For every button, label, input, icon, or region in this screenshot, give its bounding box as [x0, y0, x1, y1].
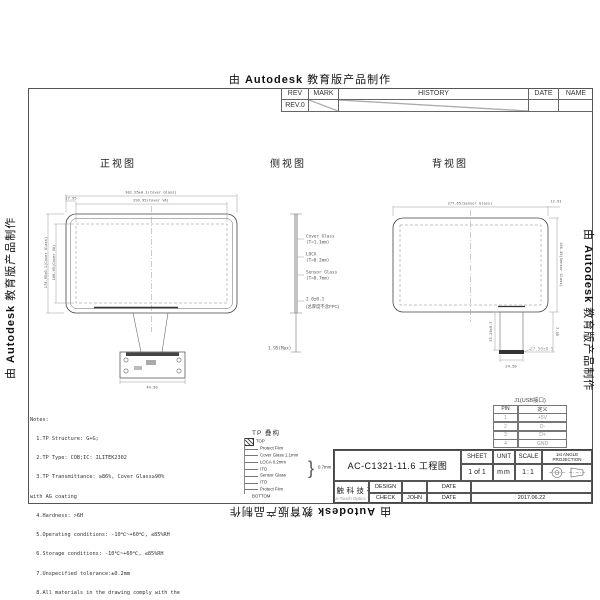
company-name-cn: 深圳市安触科技有限公司	[334, 485, 369, 496]
stackup-edge-line	[244, 438, 245, 494]
stackup-top-row: TOP	[234, 439, 336, 446]
stackup-layer-row: Cover Glass 1.1mm	[234, 453, 336, 460]
note-line: with AG coating	[30, 494, 230, 500]
check-date-label: DATE	[427, 493, 471, 505]
company-cell: 深圳市安触科技有限公司 ShenZhen An-Touch Optics Tec…	[334, 481, 369, 504]
side-max-thickness: 1.95(Max)	[268, 346, 291, 351]
company-name-en: ShenZhen An-Touch Optics Tech Co.,Ltd	[334, 496, 369, 501]
side-total-note: (总厚度不含FPC)	[306, 303, 339, 309]
dim-front-corner: 27.95	[62, 196, 81, 200]
side-layer-cover-thickness: (T=1.1mm)	[306, 240, 329, 245]
leader-line	[244, 489, 258, 490]
notes-title: Notes:	[30, 417, 230, 423]
dim-front-width-inner: 293.95(Cover VA)	[114, 198, 188, 202]
side-layer-loca-thickness: (T=0.2mm)	[306, 258, 329, 263]
dim-back-height: 166.35(Sensor Glass)	[559, 227, 563, 301]
checker-name: JOHN	[402, 493, 427, 505]
title-block-top: AC-C1321-11.6 工程图 SHEET UNIT SCALE 1st A…	[334, 450, 592, 481]
note-line: 2.TP Type: COB;IC: ILITEK2302	[30, 455, 230, 461]
design-date-value	[471, 481, 592, 493]
front-view-pcb	[120, 352, 185, 378]
pin-number: 4	[493, 439, 518, 448]
scale-label: SCALE	[515, 450, 542, 464]
dim-front-width-outer: 301.95±0.1(Cover Glass)	[114, 190, 188, 194]
title-block: AC-C1321-11.6 工程图 SHEET UNIT SCALE 1st A…	[333, 449, 593, 503]
note-line: 7.Unspecified tolerance:±0.2mm	[30, 571, 230, 577]
side-layer-cover-name: Cover Glass	[306, 234, 335, 239]
stackup-layer-row: ITO	[234, 480, 336, 487]
design-date-label: DATE	[427, 481, 471, 493]
stackup-top-label: TOP	[256, 440, 265, 444]
side-layer-sensor-name: Sensor Glass	[306, 270, 337, 275]
designer-name	[402, 481, 427, 493]
check-date-value: 2017.06.22	[471, 493, 592, 505]
dim-back-tail-offset: 7.95	[555, 319, 559, 344]
leader-line	[244, 455, 258, 456]
first-angle-projection-icon	[545, 465, 589, 480]
stackup-bottom-row: BOTTOM	[234, 493, 336, 500]
note-line: 1.TP Structure: G+G;	[30, 436, 230, 442]
note-line: 6.Storage conditions: -10℃~+60℃, ≤85%RH	[30, 551, 230, 557]
scale-value: 1:1	[515, 464, 542, 481]
leader-line	[244, 483, 258, 484]
stackup-layer-row: Protect Film	[234, 487, 336, 494]
back-view-outline	[393, 210, 548, 354]
usb-pin-section: J1(USB接口) PIN 定义 1 +5V 2 D- 3 D+ 4 GND	[493, 396, 567, 448]
sheet-label: SHEET	[461, 450, 493, 464]
dim-back-tail-width: 24.50	[496, 364, 527, 368]
unit-value: mm	[493, 464, 515, 481]
back-view-dimension-lines	[393, 206, 560, 362]
stackup-bottom-label: BOTTOM	[252, 495, 270, 499]
note-line: 4.Hardness: >6H	[30, 513, 230, 519]
check-label: CHECK	[369, 493, 402, 505]
design-label: DESIGN	[369, 481, 402, 493]
stackup-legend: TP 叠构 TOP Protect Film Cover Glass 1.1mm…	[234, 427, 336, 500]
stackup-layer-row: Sensor Glass	[234, 473, 336, 480]
stackup-title: TP 叠构	[252, 427, 336, 437]
front-view-outline	[66, 206, 237, 352]
note-line: 3.TP Transmittance: ≥86%, Cover Glass≥90…	[30, 474, 230, 480]
leader-line	[244, 469, 258, 470]
side-layer-loca-name: LOCA	[306, 252, 316, 257]
side-layer-sensor-thickness: (T=0.7mm)	[306, 276, 329, 281]
hatch-box	[244, 438, 254, 446]
leader-line	[244, 462, 258, 463]
projection-label: 1st ANGLE PROJECTION	[542, 450, 592, 464]
leader-line	[244, 476, 258, 477]
stackup-layer-row: Protect Film	[234, 446, 336, 453]
dim-front-height-inner: 166.95(Cover VA)	[52, 225, 56, 299]
notes-block: Notes: 1.TP Structure: G+G; 2.TP Type: C…	[30, 404, 230, 600]
leader-line	[244, 449, 258, 450]
dim-back-width: 277.65(Sensor Glass)	[433, 201, 507, 205]
dim-back-connector: 27.50±0.5	[530, 347, 553, 352]
note-line: 5.Operating conditions: -10℃~+60℃, ≤85%R…	[30, 532, 230, 538]
side-view-outline	[290, 214, 302, 352]
dim-back-offset-top: 12.91	[544, 199, 569, 203]
dim-back-tail-length: 55.24±0.5	[489, 313, 493, 350]
usb-pin-title: J1(USB接口)	[493, 396, 567, 404]
pin-def: GND	[518, 439, 567, 448]
note-line: 8.All materials in the drawing comply wi…	[30, 590, 230, 596]
side-total-thickness: 2.0±0.1	[306, 297, 324, 302]
unit-label: UNIT	[493, 450, 515, 464]
projection-symbol-cell	[542, 464, 592, 481]
side-view-leaders	[297, 239, 304, 301]
stackup-brace-value: 0.7mm	[318, 466, 331, 470]
drawing-title: AC-C1321-11.6 工程图	[334, 450, 461, 481]
dim-front-height-outer: 174.95±0.1(Cover Glass)	[44, 225, 48, 299]
dim-front-pcb-width: 44.50	[133, 385, 170, 389]
stackup-brace: }	[308, 458, 314, 479]
usb-pin-table: PIN 定义 1 +5V 2 D- 3 D+ 4 GND	[493, 405, 567, 448]
sheet-value: 1 of 1	[461, 464, 493, 481]
title-block-bottom: DESIGN DATE 深圳市安触科技有限公司 ShenZhen An-Touc…	[334, 481, 592, 504]
